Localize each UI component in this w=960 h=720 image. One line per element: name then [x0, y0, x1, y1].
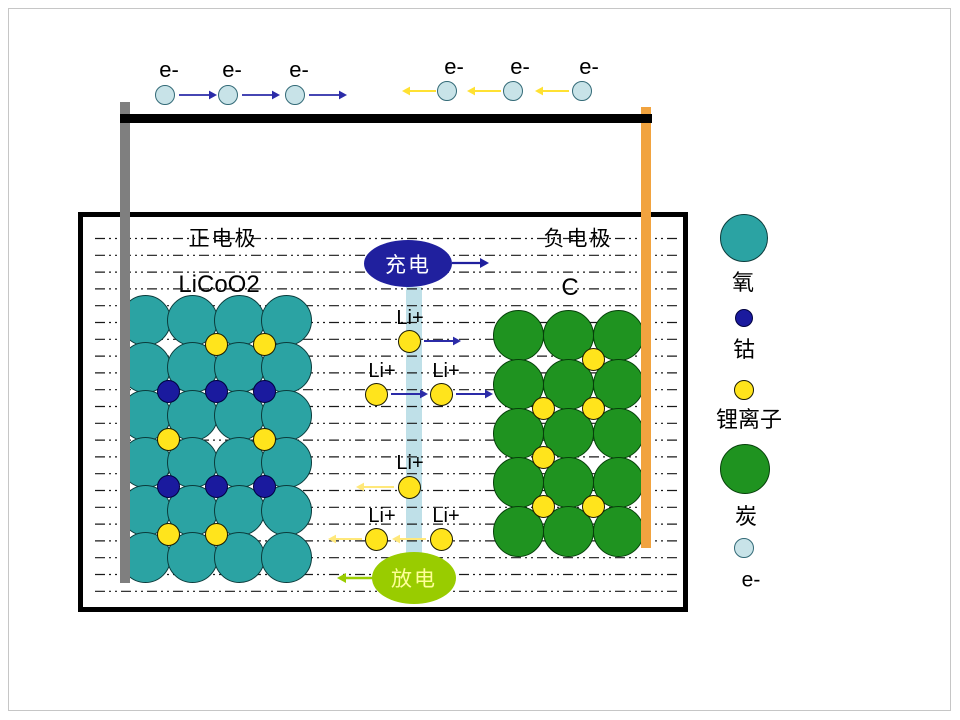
right-current-collector [641, 107, 651, 548]
cobalt-atom [157, 380, 180, 403]
lithium-ion [253, 333, 276, 356]
discharge-label: 放电 [391, 563, 437, 593]
legend-swatch-lithium-ion [734, 380, 754, 400]
electron-label: e- [579, 56, 599, 78]
lithium-ion [205, 333, 228, 356]
left-current-collector [120, 102, 130, 583]
charge-badge: 充电 [364, 240, 452, 287]
legend-swatch-oxygen [720, 214, 768, 262]
electron-label: e- [222, 59, 242, 81]
legend-label-cobalt: 钴 [733, 339, 755, 361]
li-ion-label: Li+ [368, 361, 395, 381]
li-ion-label: Li+ [396, 453, 423, 473]
cobalt-atom [253, 380, 276, 403]
li-ion-circle [430, 528, 453, 551]
li-ion-label: Li+ [432, 506, 459, 526]
legend-label-lithium-ion: 锂离子 [716, 409, 782, 431]
oxygen-atom [261, 532, 312, 583]
charge-label: 充电 [385, 249, 431, 279]
cobalt-atom [253, 475, 276, 498]
lithium-ion [532, 397, 555, 420]
lithium-ion [205, 523, 228, 546]
electron-circle [503, 81, 523, 101]
li-ion-circle [430, 383, 453, 406]
li-ion-circle [398, 476, 421, 499]
li-ion-label: Li+ [368, 506, 395, 526]
carbon-atom [493, 310, 544, 361]
li-ion-circle [398, 330, 421, 353]
legend-swatch-electron [734, 538, 754, 558]
lithium-ion [532, 495, 555, 518]
cobalt-atom [205, 475, 228, 498]
electron-circle [437, 81, 457, 101]
lithium-ion [582, 495, 605, 518]
lithium-ion [157, 428, 180, 451]
legend-label-electron: e- [742, 570, 761, 591]
electron-circle [155, 85, 175, 105]
lithium-ion [532, 446, 555, 469]
lithium-ion [582, 397, 605, 420]
lithium-ion [157, 523, 180, 546]
cobalt-atom [205, 380, 228, 403]
positive-electrode-label: 正电极 [189, 229, 258, 250]
battery-charge-discharge-diagram: 正电极 LiCoO2 负电极 C Li+Li+Li+Li+Li+Li+ 充电 放… [0, 0, 960, 720]
legend-swatch-carbon [720, 444, 770, 494]
li-ion-label: Li+ [396, 308, 423, 328]
lithium-ion [582, 348, 605, 371]
legend-label-carbon: 炭 [735, 506, 757, 528]
electron-circle [218, 85, 238, 105]
electron-label: e- [510, 56, 530, 78]
cobalt-atom [157, 475, 180, 498]
negative-electrode-label: 负电极 [544, 229, 613, 250]
lithium-ion [253, 428, 276, 451]
circuit-wire [120, 114, 652, 123]
legend-label-oxygen: 氧 [732, 272, 754, 294]
electron-label: e- [159, 59, 179, 81]
li-ion-circle [365, 383, 388, 406]
electron-label: e- [289, 59, 309, 81]
legend-swatch-cobalt [735, 309, 753, 327]
discharge-badge: 放电 [372, 552, 456, 604]
li-ion-circle [365, 528, 388, 551]
electron-circle [572, 81, 592, 101]
negative-electrode-formula: C [561, 276, 578, 300]
li-ion-label: Li+ [432, 361, 459, 381]
electron-circle [285, 85, 305, 105]
positive-electrode-formula: LiCoO2 [178, 273, 259, 297]
electron-label: e- [444, 56, 464, 78]
